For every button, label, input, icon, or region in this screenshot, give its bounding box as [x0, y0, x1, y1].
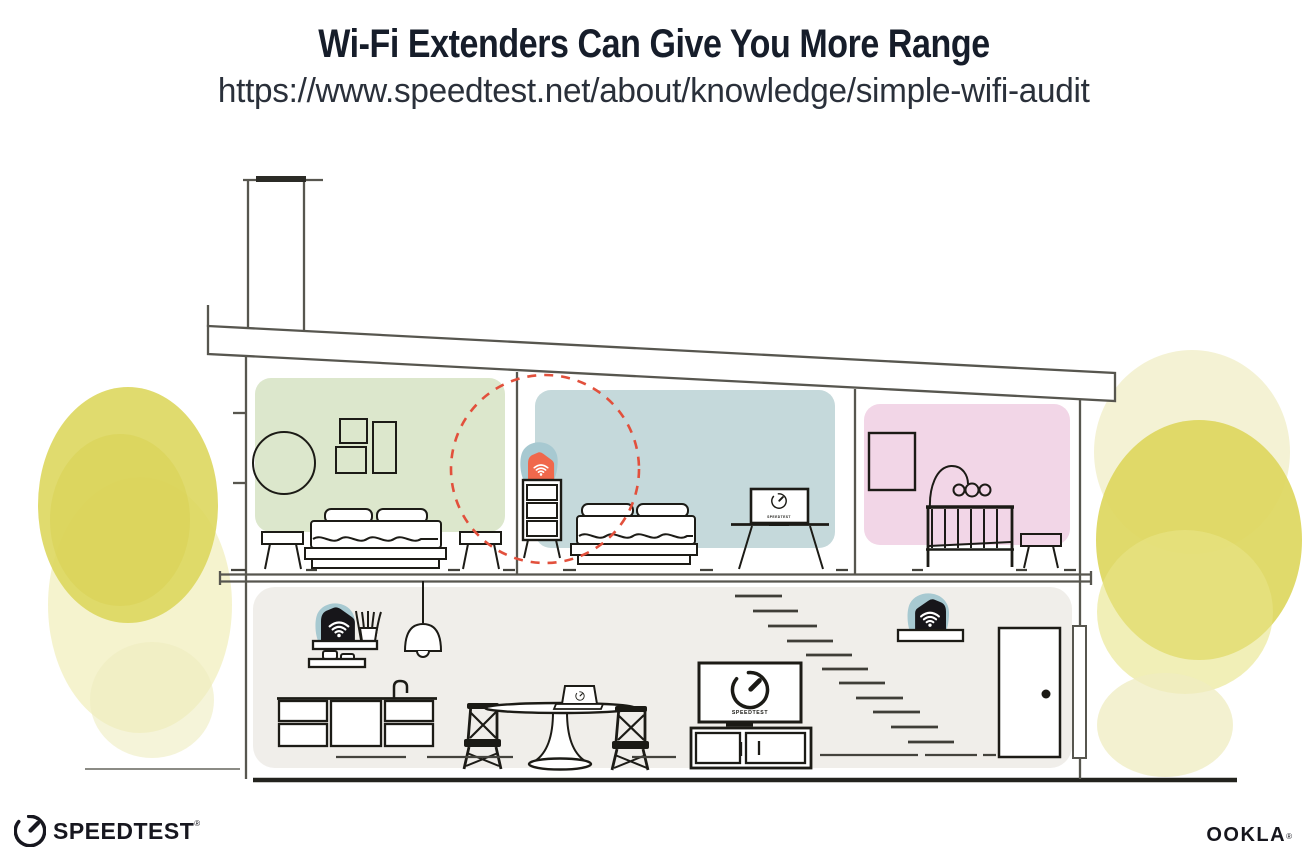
page-title: Wi-Fi Extenders Can Give You More Range — [0, 22, 1308, 67]
door-frame-trim — [1073, 626, 1086, 758]
tv-console — [691, 728, 811, 768]
source-url-text: https://www.speedtest.net/about/knowledg… — [218, 72, 1090, 111]
nightstand-left — [262, 532, 303, 569]
nursery-stool — [1021, 534, 1061, 568]
shelf-upper — [313, 641, 377, 649]
bedroom-tv-label: SPEEDTEST — [767, 515, 791, 519]
speedtest-wordmark: SPEEDTEST — [53, 818, 194, 844]
foliage-left — [38, 387, 232, 758]
front-door — [999, 628, 1060, 757]
ookla-logo: OOKLA® — [1206, 824, 1292, 847]
nightstand-right — [460, 532, 501, 569]
source-url: https://www.speedtest.net/about/knowledg… — [0, 72, 1308, 111]
speedtest-reg-mark: ® — [194, 819, 200, 828]
speedtest-logo: SPEEDTEST® — [14, 815, 200, 847]
ookla-reg-mark: ® — [1286, 832, 1292, 841]
living-room-tv: SPEEDTEST — [691, 663, 811, 768]
shelf-lower — [309, 659, 365, 667]
shelf — [898, 630, 963, 641]
mid-floor-band — [220, 571, 1091, 585]
ookla-wordmark: OOKLA — [1206, 824, 1286, 847]
living-tv-label: SPEEDTEST — [732, 710, 768, 716]
foliage-right — [1094, 350, 1302, 777]
nursery-pink-wall — [864, 404, 1070, 545]
chimney — [243, 176, 323, 332]
page-title-text: Wi-Fi Extenders Can Give You More Range — [318, 22, 989, 67]
door-knob — [1042, 690, 1051, 699]
speedtest-gauge-icon — [14, 815, 46, 847]
infographic-canvas: SPEEDTEST — [0, 0, 1308, 861]
house-cross-section-illustration: SPEEDTEST — [0, 0, 1308, 861]
